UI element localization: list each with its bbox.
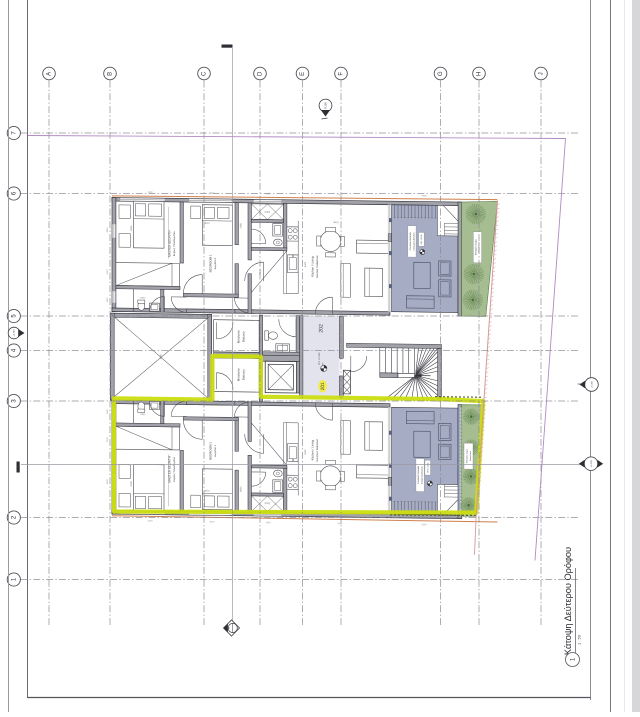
svg-text:G: G (438, 71, 444, 76)
svg-text:Kitchen / Living: Kitchen / Living (310, 256, 314, 277)
svg-text:+5.300: +5.300 (14, 329, 16, 337)
svg-text:B: B (108, 72, 114, 76)
svg-text:Balcony: Balcony (241, 369, 245, 380)
svg-text:Καλυμμένη Βεράντα: Καλυμμένη Βεράντα (412, 232, 415, 251)
svg-text:Kitchen / Living: Kitchen / Living (310, 440, 314, 461)
svg-text:2200: 2200 (259, 269, 262, 275)
svg-text:8.100: 8.100 (324, 102, 328, 109)
svg-text:2700: 2700 (130, 481, 133, 487)
svg-text:Κάτοψη Δεύτερου Ορόφου: Κάτοψη Δεύτερου Ορόφου (563, 547, 573, 655)
svg-text:BEDROOM 1: BEDROOM 1 (209, 442, 213, 460)
svg-text:Φυτεμένο Δώμα: Φυτεμένο Δώμα (466, 448, 469, 463)
svg-text:1900: 1900 (107, 297, 109, 303)
svg-text:Δωμάτιο 1: Δωμάτιο 1 (213, 257, 217, 270)
svg-text:1200: 1200 (160, 353, 163, 359)
svg-text:C: C (202, 71, 208, 76)
svg-text:202: 202 (319, 324, 325, 333)
svg-text:Green Roof: Green Roof (469, 451, 472, 461)
svg-text:1900: 1900 (107, 408, 109, 414)
svg-text:3610: 3610 (204, 489, 210, 492)
svg-text:0001: 0001 (265, 501, 271, 505)
svg-text:Κουζίνα / Καθιστικό: Κουζίνα / Καθιστικό (315, 255, 319, 278)
svg-text:6002: 6002 (141, 414, 147, 416)
svg-text:2100: 2100 (107, 436, 109, 442)
svg-text:F: F (339, 72, 345, 76)
svg-text:Καλυμμένη Βεράντα: Καλυμμένη Βεράντα (420, 465, 423, 484)
svg-text:1800: 1800 (266, 522, 272, 524)
svg-text:Κυρίως Υπνοδωμάτιο: Κυρίως Υπνοδωμάτιο (172, 231, 176, 257)
svg-text:+5.300: +5.300 (591, 460, 593, 468)
svg-text:5400: 5400 (338, 194, 344, 196)
svg-text:Μπαλκόνι: Μπαλκόνι (236, 368, 240, 381)
svg-text:5400: 5400 (304, 261, 307, 267)
svg-text:FFL +5.300: FFL +5.300 (318, 352, 321, 365)
svg-text:4000: 4000 (107, 227, 109, 233)
svg-text:Covered Veranda: Covered Veranda (417, 465, 420, 484)
svg-text:Covered Veranda: Covered Veranda (409, 232, 412, 251)
svg-text:MASTER BEDR/TH: MASTER BEDR/TH (167, 456, 171, 483)
svg-text:3610: 3610 (210, 521, 216, 523)
svg-text:E: E (300, 72, 306, 76)
svg-text:BEDROOM 1: BEDROOM 1 (209, 254, 213, 272)
svg-text:Δωμάτιο 1: Δωμάτιο 1 (213, 444, 217, 457)
svg-text:+5.300: +5.300 (592, 380, 594, 388)
svg-text:Φυτεμένο Δώμα: Φυτεμένο Δώμα (475, 239, 478, 255)
svg-text:FFL +8.100: FFL +8.100 (421, 235, 423, 245)
svg-text:6002: 6002 (141, 297, 147, 299)
svg-text:3610: 3610 (204, 222, 210, 225)
svg-text:3000: 3000 (422, 195, 428, 197)
svg-text:4000: 4000 (107, 478, 109, 484)
svg-text:J: J (539, 72, 545, 75)
svg-text:2300: 2300 (148, 521, 154, 523)
svg-text:Balcony: Balcony (241, 331, 245, 342)
svg-text:3610: 3610 (333, 221, 339, 224)
svg-text:4000: 4000 (239, 222, 242, 228)
svg-text:Κυρίως Υπνοδωμάτιο: Κυρίως Υπνοδωμάτιο (172, 456, 176, 482)
svg-text:Μπαλκόνι: Μπαλκόνι (236, 330, 240, 343)
svg-text:201: 201 (320, 382, 326, 390)
svg-text:H: H (477, 72, 483, 76)
svg-text:5400: 5400 (304, 449, 307, 455)
svg-text:1 : 50: 1 : 50 (577, 634, 582, 645)
svg-text:2100: 2100 (107, 269, 109, 275)
svg-text:D: D (258, 71, 264, 76)
svg-text:3000: 3000 (422, 524, 428, 526)
svg-text:5400: 5400 (338, 523, 344, 525)
svg-text:A: A (47, 72, 53, 76)
svg-text:0001: 0001 (265, 210, 271, 214)
svg-text:3600: 3600 (239, 486, 242, 492)
svg-text:2300: 2300 (130, 225, 133, 231)
svg-text:Κουζίνα / Καθιστικό: Κουζίνα / Καθιστικό (315, 439, 319, 462)
svg-text:MASTER BEDR/TH: MASTER BEDR/TH (167, 230, 171, 257)
